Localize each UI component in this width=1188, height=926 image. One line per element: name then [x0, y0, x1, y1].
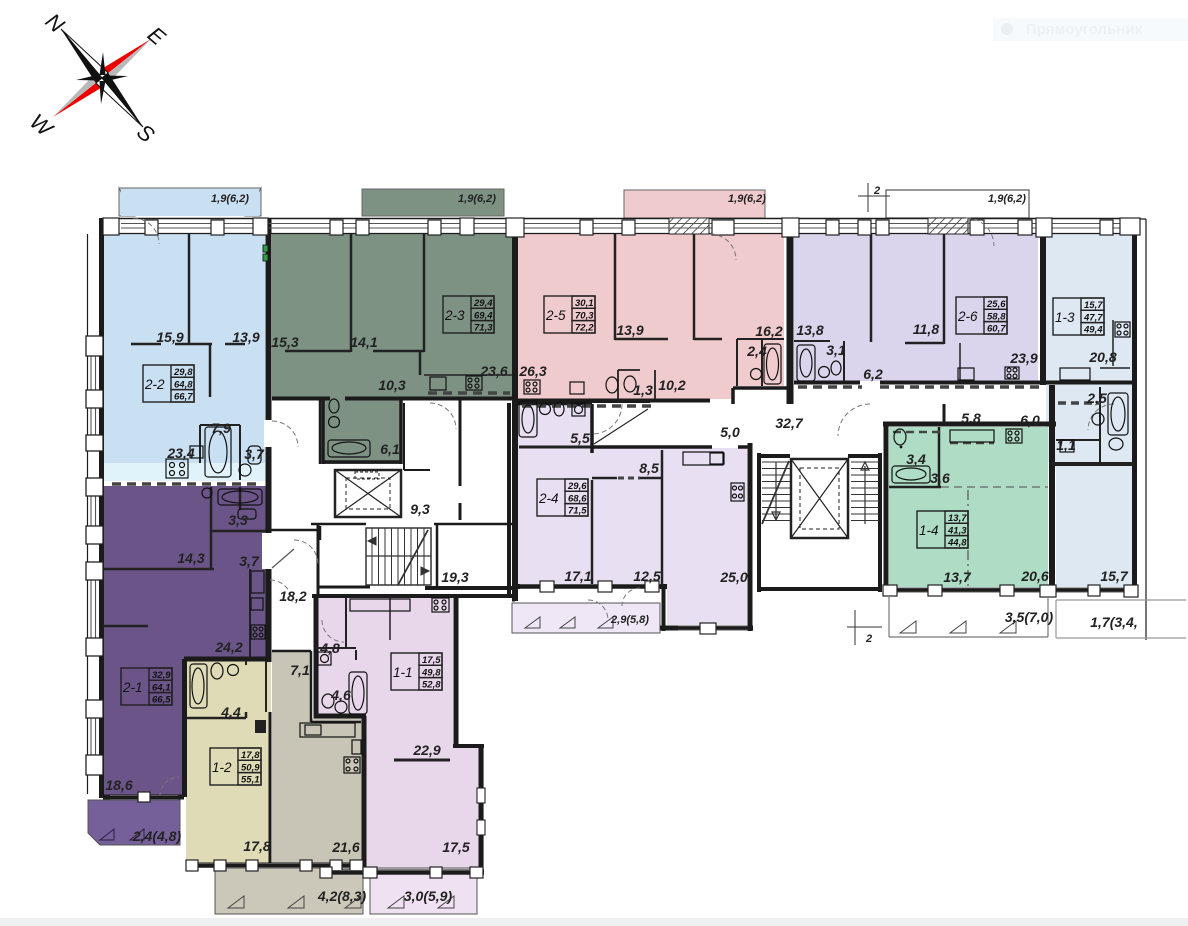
svg-text:26,3: 26,3: [518, 363, 546, 379]
svg-text:18,6: 18,6: [105, 777, 132, 793]
svg-text:64,8: 64,8: [174, 379, 193, 390]
svg-text:23,6: 23,6: [479, 363, 507, 379]
svg-text:3,6: 3,6: [930, 470, 950, 486]
svg-text:10,2: 10,2: [658, 377, 685, 393]
svg-text:3,5(7,0): 3,5(7,0): [1005, 609, 1054, 625]
svg-text:2-4: 2-4: [538, 491, 559, 506]
svg-text:32,7: 32,7: [775, 415, 803, 431]
svg-text:3,0(5,9): 3,0(5,9): [404, 888, 453, 904]
svg-text:3,1: 3,1: [826, 342, 846, 358]
svg-text:41,3: 41,3: [947, 525, 967, 536]
svg-text:49,4: 49,4: [1083, 325, 1103, 336]
svg-text:2-2: 2-2: [144, 377, 165, 392]
svg-text:15,9: 15,9: [156, 329, 183, 345]
svg-text:25,6: 25,6: [986, 299, 1006, 310]
svg-text:4,8: 4,8: [319, 640, 340, 656]
svg-text:13,9: 13,9: [616, 322, 643, 338]
svg-text:64,1: 64,1: [152, 682, 171, 693]
svg-text:2-6: 2-6: [957, 309, 978, 324]
svg-text:66,7: 66,7: [174, 392, 193, 403]
svg-text:17,8: 17,8: [241, 750, 260, 761]
svg-text:1-2: 1-2: [212, 760, 232, 775]
svg-text:44,8: 44,8: [947, 538, 967, 549]
svg-text:3,3: 3,3: [228, 512, 248, 528]
svg-text:58,8: 58,8: [987, 311, 1006, 322]
svg-text:71,5: 71,5: [568, 506, 587, 517]
svg-text:69,4: 69,4: [474, 310, 493, 321]
svg-text:5,8: 5,8: [961, 410, 981, 426]
svg-text:13,9: 13,9: [232, 329, 259, 345]
svg-text:1-1: 1-1: [393, 665, 413, 680]
svg-text:1,9(6,2): 1,9(6,2): [458, 193, 496, 205]
svg-text:2-1: 2-1: [122, 680, 143, 695]
svg-text:15,7: 15,7: [1084, 300, 1103, 311]
svg-text:7,9: 7,9: [211, 420, 231, 436]
svg-text:1,9(6,2): 1,9(6,2): [988, 193, 1026, 205]
svg-text:55,1: 55,1: [241, 775, 260, 786]
svg-text:19,3: 19,3: [441, 569, 468, 585]
svg-text:52,8: 52,8: [422, 680, 441, 691]
svg-text:2,4(4,8): 2,4(4,8): [132, 828, 182, 844]
svg-text:25,0: 25,0: [719, 569, 747, 585]
svg-text:8,5: 8,5: [639, 460, 659, 476]
svg-text:Прямоугольник: Прямоугольник: [1026, 21, 1143, 38]
svg-text:13,8: 13,8: [796, 322, 823, 338]
svg-text:17,5: 17,5: [422, 655, 441, 666]
svg-text:50,9: 50,9: [241, 762, 260, 773]
svg-text:3,7: 3,7: [239, 553, 260, 569]
svg-text:5,5: 5,5: [570, 430, 590, 446]
svg-text:1-4: 1-4: [919, 523, 939, 538]
svg-text:2,5: 2,5: [1086, 390, 1107, 406]
svg-text:6,0: 6,0: [1020, 412, 1040, 428]
svg-text:60,7: 60,7: [987, 324, 1006, 335]
svg-text:21,6: 21,6: [331, 839, 359, 855]
svg-text:72,2: 72,2: [575, 323, 594, 334]
svg-text:17,8: 17,8: [243, 838, 270, 854]
svg-text:2-5: 2-5: [545, 308, 566, 323]
svg-text:1,9(6,2): 1,9(6,2): [211, 193, 249, 205]
svg-text:13,7: 13,7: [943, 569, 971, 585]
svg-text:4,6: 4,6: [330, 687, 351, 703]
svg-text:17,5: 17,5: [442, 839, 469, 855]
svg-text:1-3: 1-3: [1055, 310, 1075, 325]
svg-text:68,6: 68,6: [568, 493, 587, 504]
svg-text:2,4: 2,4: [746, 343, 767, 359]
svg-text:11,8: 11,8: [913, 321, 939, 337]
svg-text:24,2: 24,2: [214, 639, 242, 655]
svg-text:3,4: 3,4: [906, 451, 926, 467]
svg-text:3,7: 3,7: [244, 446, 265, 462]
svg-text:18,2: 18,2: [279, 588, 306, 604]
svg-text:1,9(6,2): 1,9(6,2): [728, 193, 766, 205]
svg-text:71,3: 71,3: [474, 323, 493, 334]
svg-text:14,3: 14,3: [177, 550, 204, 566]
svg-text:15,7: 15,7: [1100, 568, 1128, 584]
svg-text:29,6: 29,6: [567, 481, 587, 492]
svg-text:70,3: 70,3: [575, 310, 594, 321]
svg-text:7,1: 7,1: [290, 662, 310, 678]
svg-text:15,3: 15,3: [271, 334, 298, 350]
svg-text:23,4: 23,4: [166, 445, 194, 461]
svg-text:20,8: 20,8: [1088, 349, 1116, 365]
svg-text:29,8: 29,8: [173, 367, 193, 378]
svg-text:32,9: 32,9: [152, 670, 171, 681]
svg-text:13,7: 13,7: [948, 513, 967, 524]
svg-text:10,3: 10,3: [378, 377, 405, 393]
svg-text:1,7(3,4,: 1,7(3,4,: [1090, 614, 1137, 630]
svg-text:49,8: 49,8: [421, 667, 441, 678]
svg-text:2-3: 2-3: [444, 308, 465, 323]
svg-text:1,3: 1,3: [633, 382, 653, 398]
svg-text:2,9(5,8): 2,9(5,8): [610, 614, 649, 626]
svg-text:1,1: 1,1: [1056, 437, 1076, 453]
svg-text:5,0: 5,0: [720, 424, 740, 440]
svg-text:2: 2: [865, 633, 872, 645]
svg-text:6,2: 6,2: [863, 366, 883, 382]
svg-text:14,1: 14,1: [350, 334, 377, 350]
svg-text:22,9: 22,9: [412, 742, 440, 758]
svg-text:23,9: 23,9: [1009, 350, 1037, 366]
svg-text:2: 2: [873, 185, 880, 197]
svg-text:29,4: 29,4: [473, 298, 493, 309]
svg-text:12,5: 12,5: [633, 568, 660, 584]
svg-text:4,4: 4,4: [220, 704, 241, 720]
svg-text:47,7: 47,7: [1083, 312, 1103, 323]
svg-text:16,2: 16,2: [755, 323, 782, 339]
svg-text:9,3: 9,3: [410, 501, 430, 517]
svg-text:6,1: 6,1: [380, 441, 400, 457]
svg-text:66,5: 66,5: [152, 695, 171, 706]
svg-text:4,2(8,3): 4,2(8,3): [317, 888, 367, 904]
svg-text:20,6: 20,6: [1020, 568, 1048, 584]
svg-text:17,1: 17,1: [564, 568, 591, 584]
svg-text:30,1: 30,1: [575, 298, 594, 309]
